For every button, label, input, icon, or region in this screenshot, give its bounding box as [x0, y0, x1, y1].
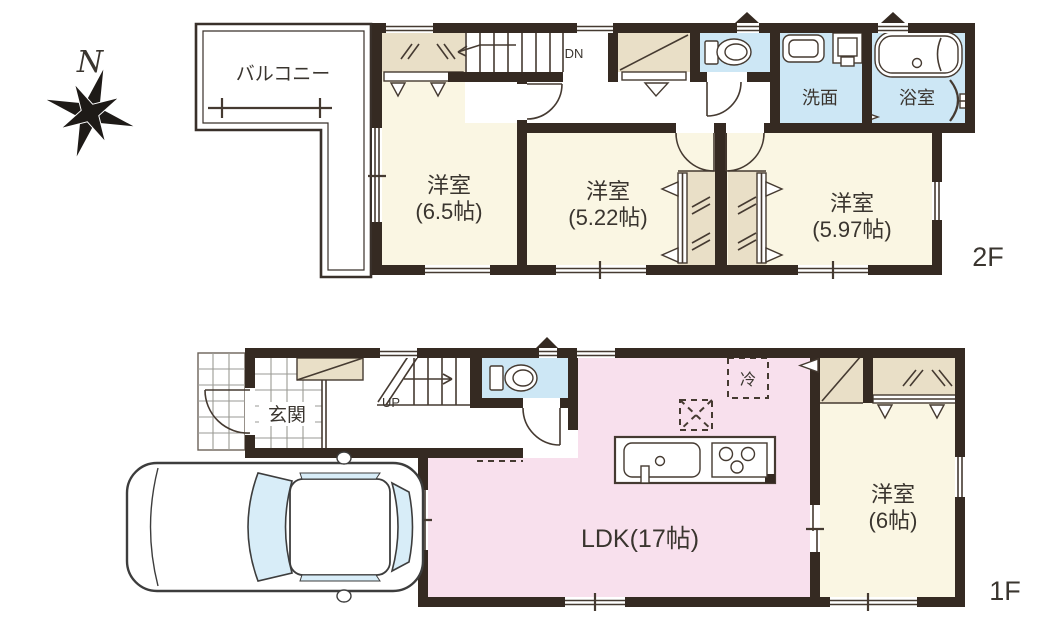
- room-1f-size: (6帖): [869, 508, 918, 533]
- floor-plan-drawing: N: [0, 0, 1048, 619]
- door-swing: [523, 408, 560, 445]
- vent-icon: [536, 337, 558, 348]
- car-mirror: [337, 452, 351, 464]
- stove-icon: [712, 443, 767, 477]
- compass-rose: N: [30, 45, 150, 173]
- stairs-up-label: UP: [382, 395, 400, 410]
- compass-north-label: N: [76, 45, 105, 80]
- kitchen-counter: [615, 437, 775, 483]
- floor1-label: 1F: [989, 576, 1021, 606]
- ldk-label: LDK(17帖): [581, 525, 699, 553]
- toilet-icon-1f: [490, 365, 537, 391]
- room-2f-3-name: 洋室: [830, 191, 874, 216]
- refrigerator-label: 冷: [740, 371, 756, 389]
- bathroom-label: 浴室: [899, 88, 935, 108]
- room-2f-2-name: 洋室: [586, 179, 630, 204]
- door-swing: [707, 82, 741, 116]
- vent-icon: [735, 12, 759, 23]
- toilet-icon-2f: [705, 39, 751, 65]
- car-roof: [290, 479, 390, 575]
- balcony: [196, 24, 371, 277]
- room-2f-2-size: (5.22帖): [568, 205, 647, 230]
- vent-icon: [881, 12, 905, 23]
- shoe-cabinet: [297, 358, 363, 380]
- car-mirror: [337, 590, 351, 602]
- room-2f-3-size: (5.97帖): [812, 217, 891, 242]
- entrance-porch-tiles: [198, 353, 245, 450]
- car-side-window: [300, 575, 380, 581]
- stairs-dn-label: DN: [565, 46, 584, 61]
- washroom-label: 洗面: [802, 88, 838, 108]
- compass-star-short: [45, 68, 134, 157]
- bathtub-icon: [875, 32, 962, 77]
- car-windshield: [248, 473, 292, 581]
- washing-machine-icon: [833, 33, 862, 66]
- room-2f-1-size: (6.5帖): [415, 199, 482, 224]
- room-1f-name: 洋室: [871, 482, 915, 507]
- car-top-view: [127, 452, 423, 602]
- car-side-window: [300, 473, 380, 479]
- balcony-label: バルコニー: [236, 64, 331, 85]
- entrance-label: 玄関: [268, 404, 306, 426]
- floor2-label: 2F: [972, 242, 1004, 272]
- floor-plan-page: N: [0, 0, 1048, 619]
- room-2f-1-name: 洋室: [427, 173, 471, 198]
- closet-2f-left: [382, 33, 465, 72]
- sink-icon: [783, 35, 824, 62]
